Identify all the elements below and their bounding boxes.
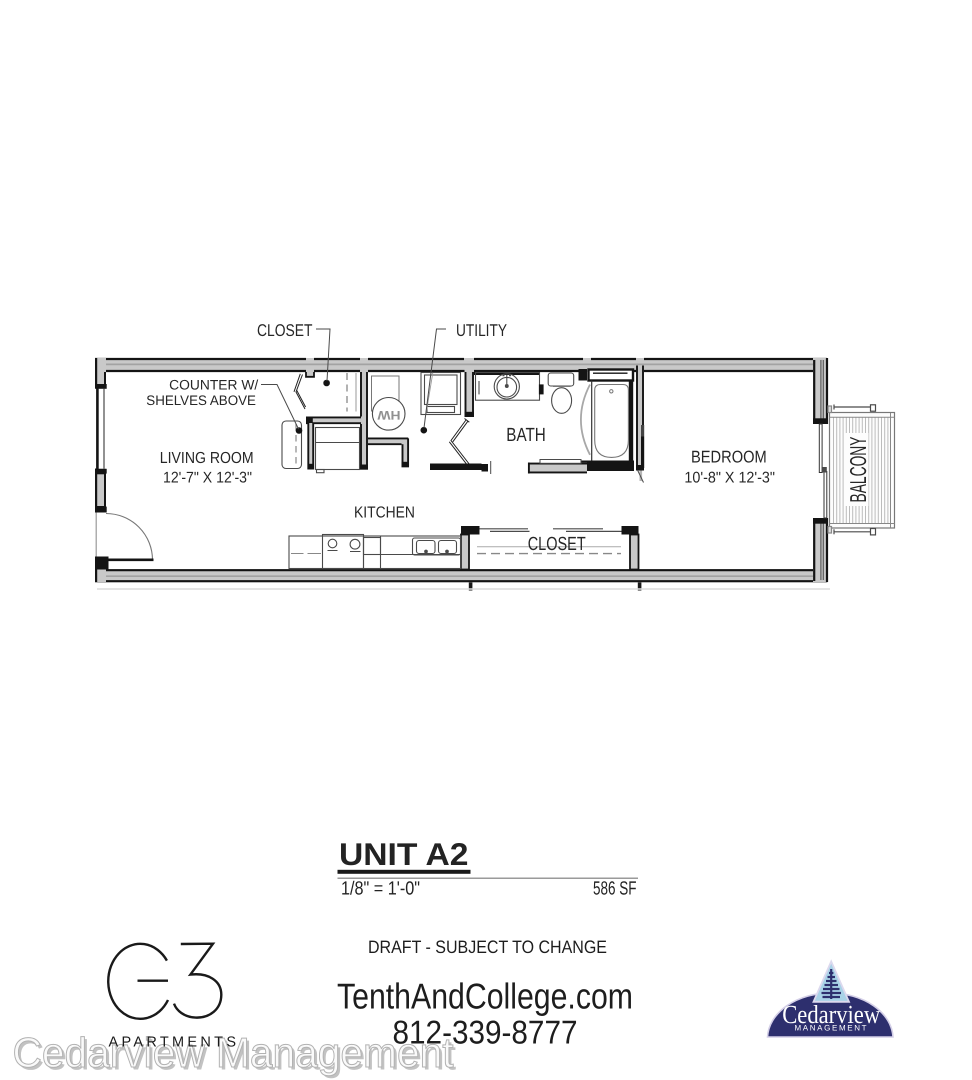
svg-text:APARTMENTS: APARTMENTS [109, 1035, 237, 1051]
svg-text:HW: HW [377, 408, 400, 422]
svg-text:COUNTER W/: COUNTER W/ [169, 378, 258, 393]
svg-text:DRAFT - SUBJECT TO CHANGE: DRAFT - SUBJECT TO CHANGE [368, 937, 607, 957]
svg-text:12'-7" X 12'-3": 12'-7" X 12'-3" [163, 470, 252, 487]
svg-text:CLOSET: CLOSET [528, 534, 586, 555]
svg-text:586 SF: 586 SF [593, 879, 637, 900]
svg-text:10'-8" X 12'-3": 10'-8" X 12'-3" [684, 470, 775, 487]
svg-text:TenthAndCollege.com: TenthAndCollege.com [337, 976, 633, 1017]
svg-text:SHELVES ABOVE: SHELVES ABOVE [146, 393, 256, 408]
svg-text:BATH: BATH [506, 425, 546, 446]
svg-text:LIVING ROOM: LIVING ROOM [160, 450, 254, 467]
svg-text:UNIT A2: UNIT A2 [339, 836, 469, 872]
svg-text:UTILITY: UTILITY [456, 321, 507, 340]
svg-text:CLOSET: CLOSET [257, 321, 313, 340]
svg-text:KITCHEN: KITCHEN [354, 504, 415, 521]
svg-text:1/8" = 1'-0": 1/8" = 1'-0" [341, 879, 420, 900]
svg-text:BEDROOM: BEDROOM [691, 447, 767, 466]
svg-text:BALCONY: BALCONY [845, 437, 871, 503]
